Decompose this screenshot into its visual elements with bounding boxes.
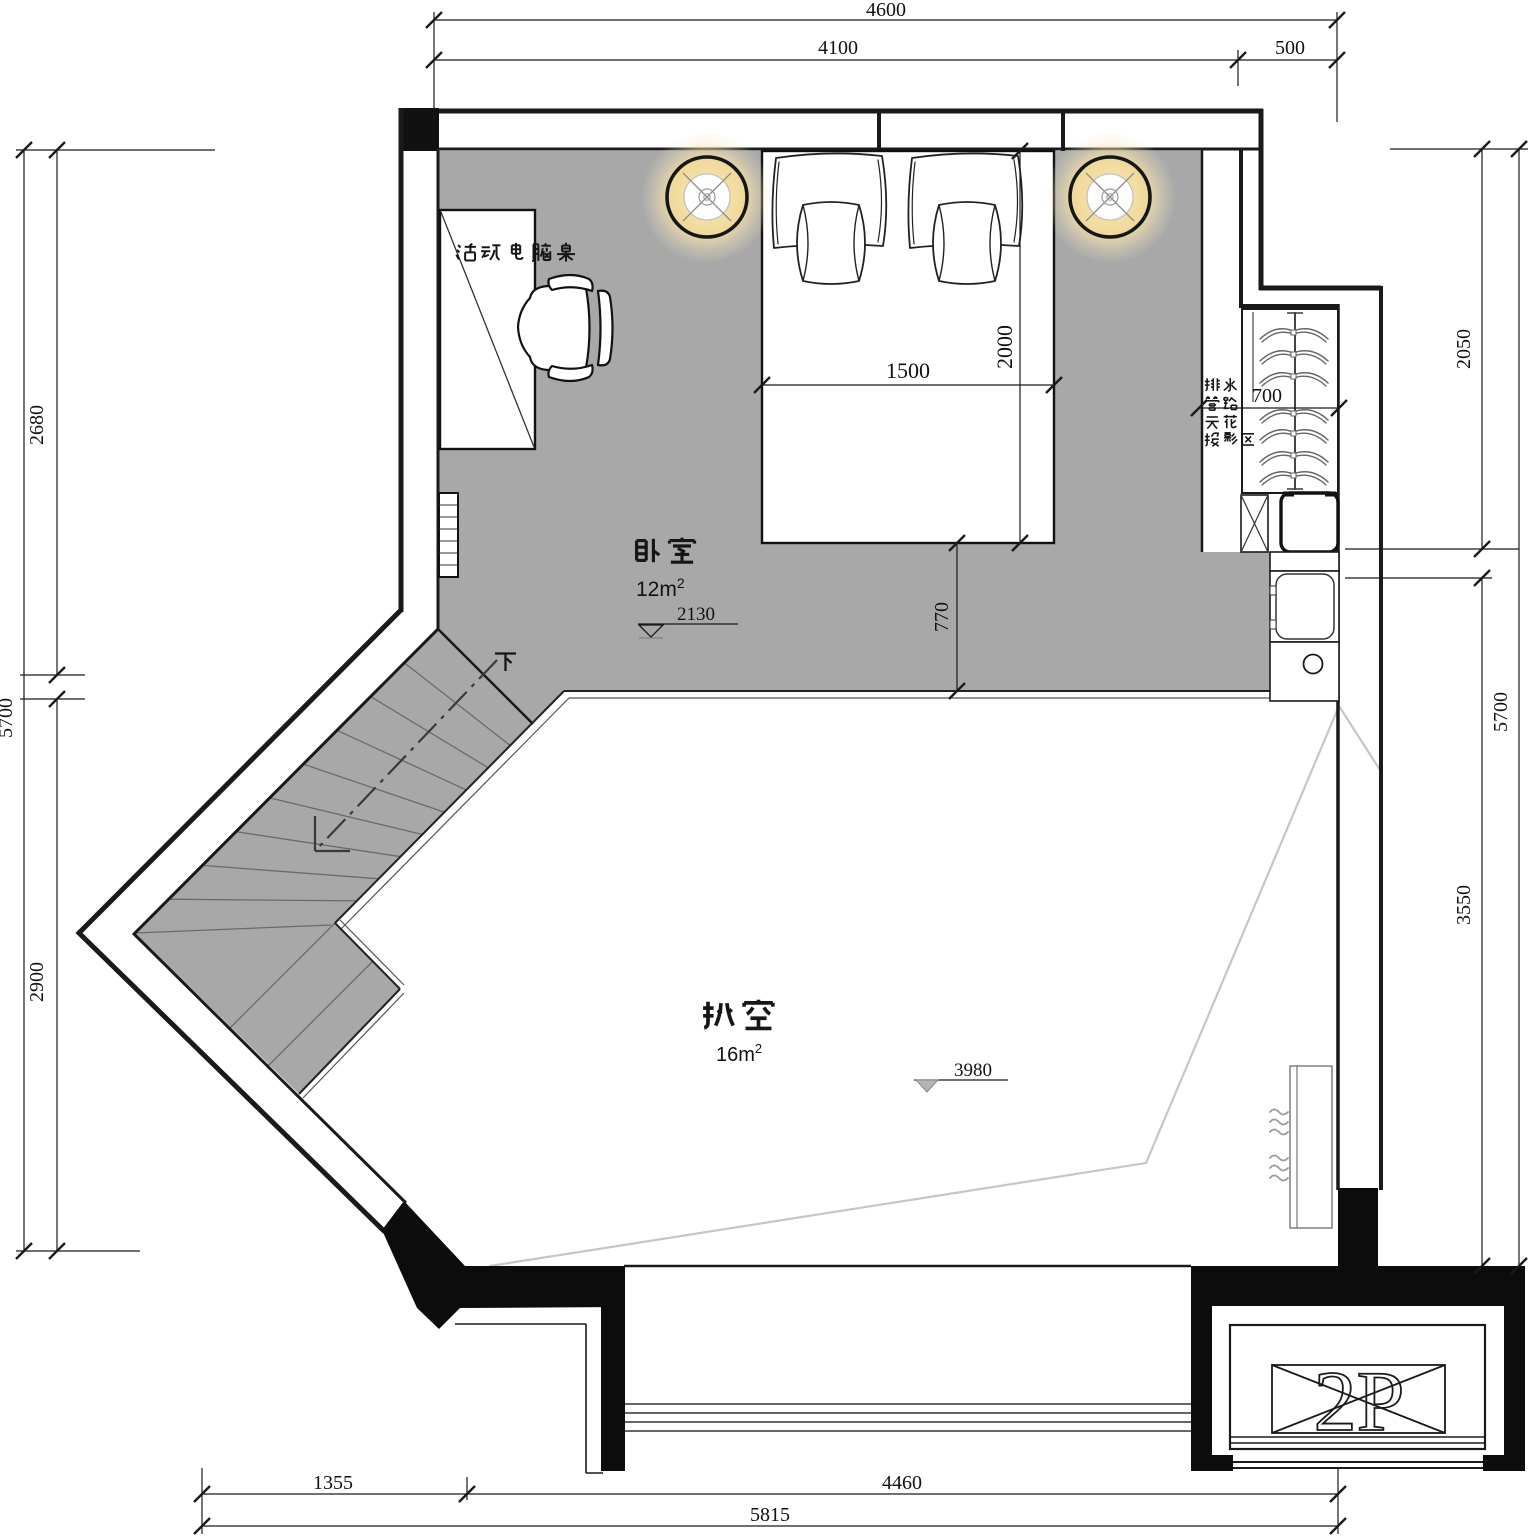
svg-text:2050: 2050 bbox=[1453, 329, 1475, 369]
svg-text:4600: 4600 bbox=[866, 0, 906, 21]
svg-text:1500: 1500 bbox=[886, 358, 930, 383]
svg-text:4460: 4460 bbox=[882, 1472, 922, 1494]
svg-text:2P: 2P bbox=[1314, 1353, 1405, 1449]
svg-text:500: 500 bbox=[1275, 37, 1305, 59]
svg-text:1355: 1355 bbox=[313, 1472, 353, 1494]
svg-text:2900: 2900 bbox=[26, 962, 48, 1002]
svg-text:5815: 5815 bbox=[750, 1504, 790, 1526]
svg-text:4100: 4100 bbox=[818, 37, 858, 59]
svg-text:2130: 2130 bbox=[677, 604, 715, 625]
svg-text:3980: 3980 bbox=[954, 1060, 992, 1081]
svg-text:770: 770 bbox=[931, 602, 953, 632]
svg-text:2000: 2000 bbox=[992, 325, 1017, 369]
svg-text:5700: 5700 bbox=[0, 698, 17, 738]
svg-text:5700: 5700 bbox=[1490, 692, 1512, 732]
svg-text:2680: 2680 bbox=[26, 405, 48, 445]
svg-text:3550: 3550 bbox=[1453, 885, 1475, 925]
svg-text:700: 700 bbox=[1252, 385, 1282, 407]
